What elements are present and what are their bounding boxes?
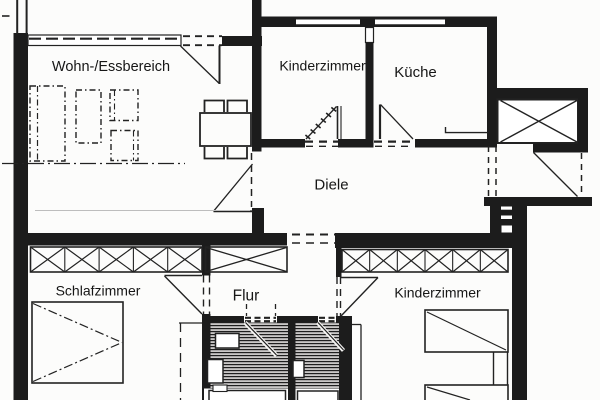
svg-text:Flur: Flur xyxy=(233,288,260,305)
svg-text:Kinderzimmer: Kinderzimmer xyxy=(394,285,481,301)
svg-text:Diele: Diele xyxy=(314,177,348,194)
svg-text:Küche: Küche xyxy=(394,64,437,81)
svg-text:Wohn-/Essbereich: Wohn-/Essbereich xyxy=(52,59,170,75)
svg-text:Kinderzimmer: Kinderzimmer xyxy=(279,58,366,74)
svg-text:Schlafzimmer: Schlafzimmer xyxy=(56,283,141,299)
